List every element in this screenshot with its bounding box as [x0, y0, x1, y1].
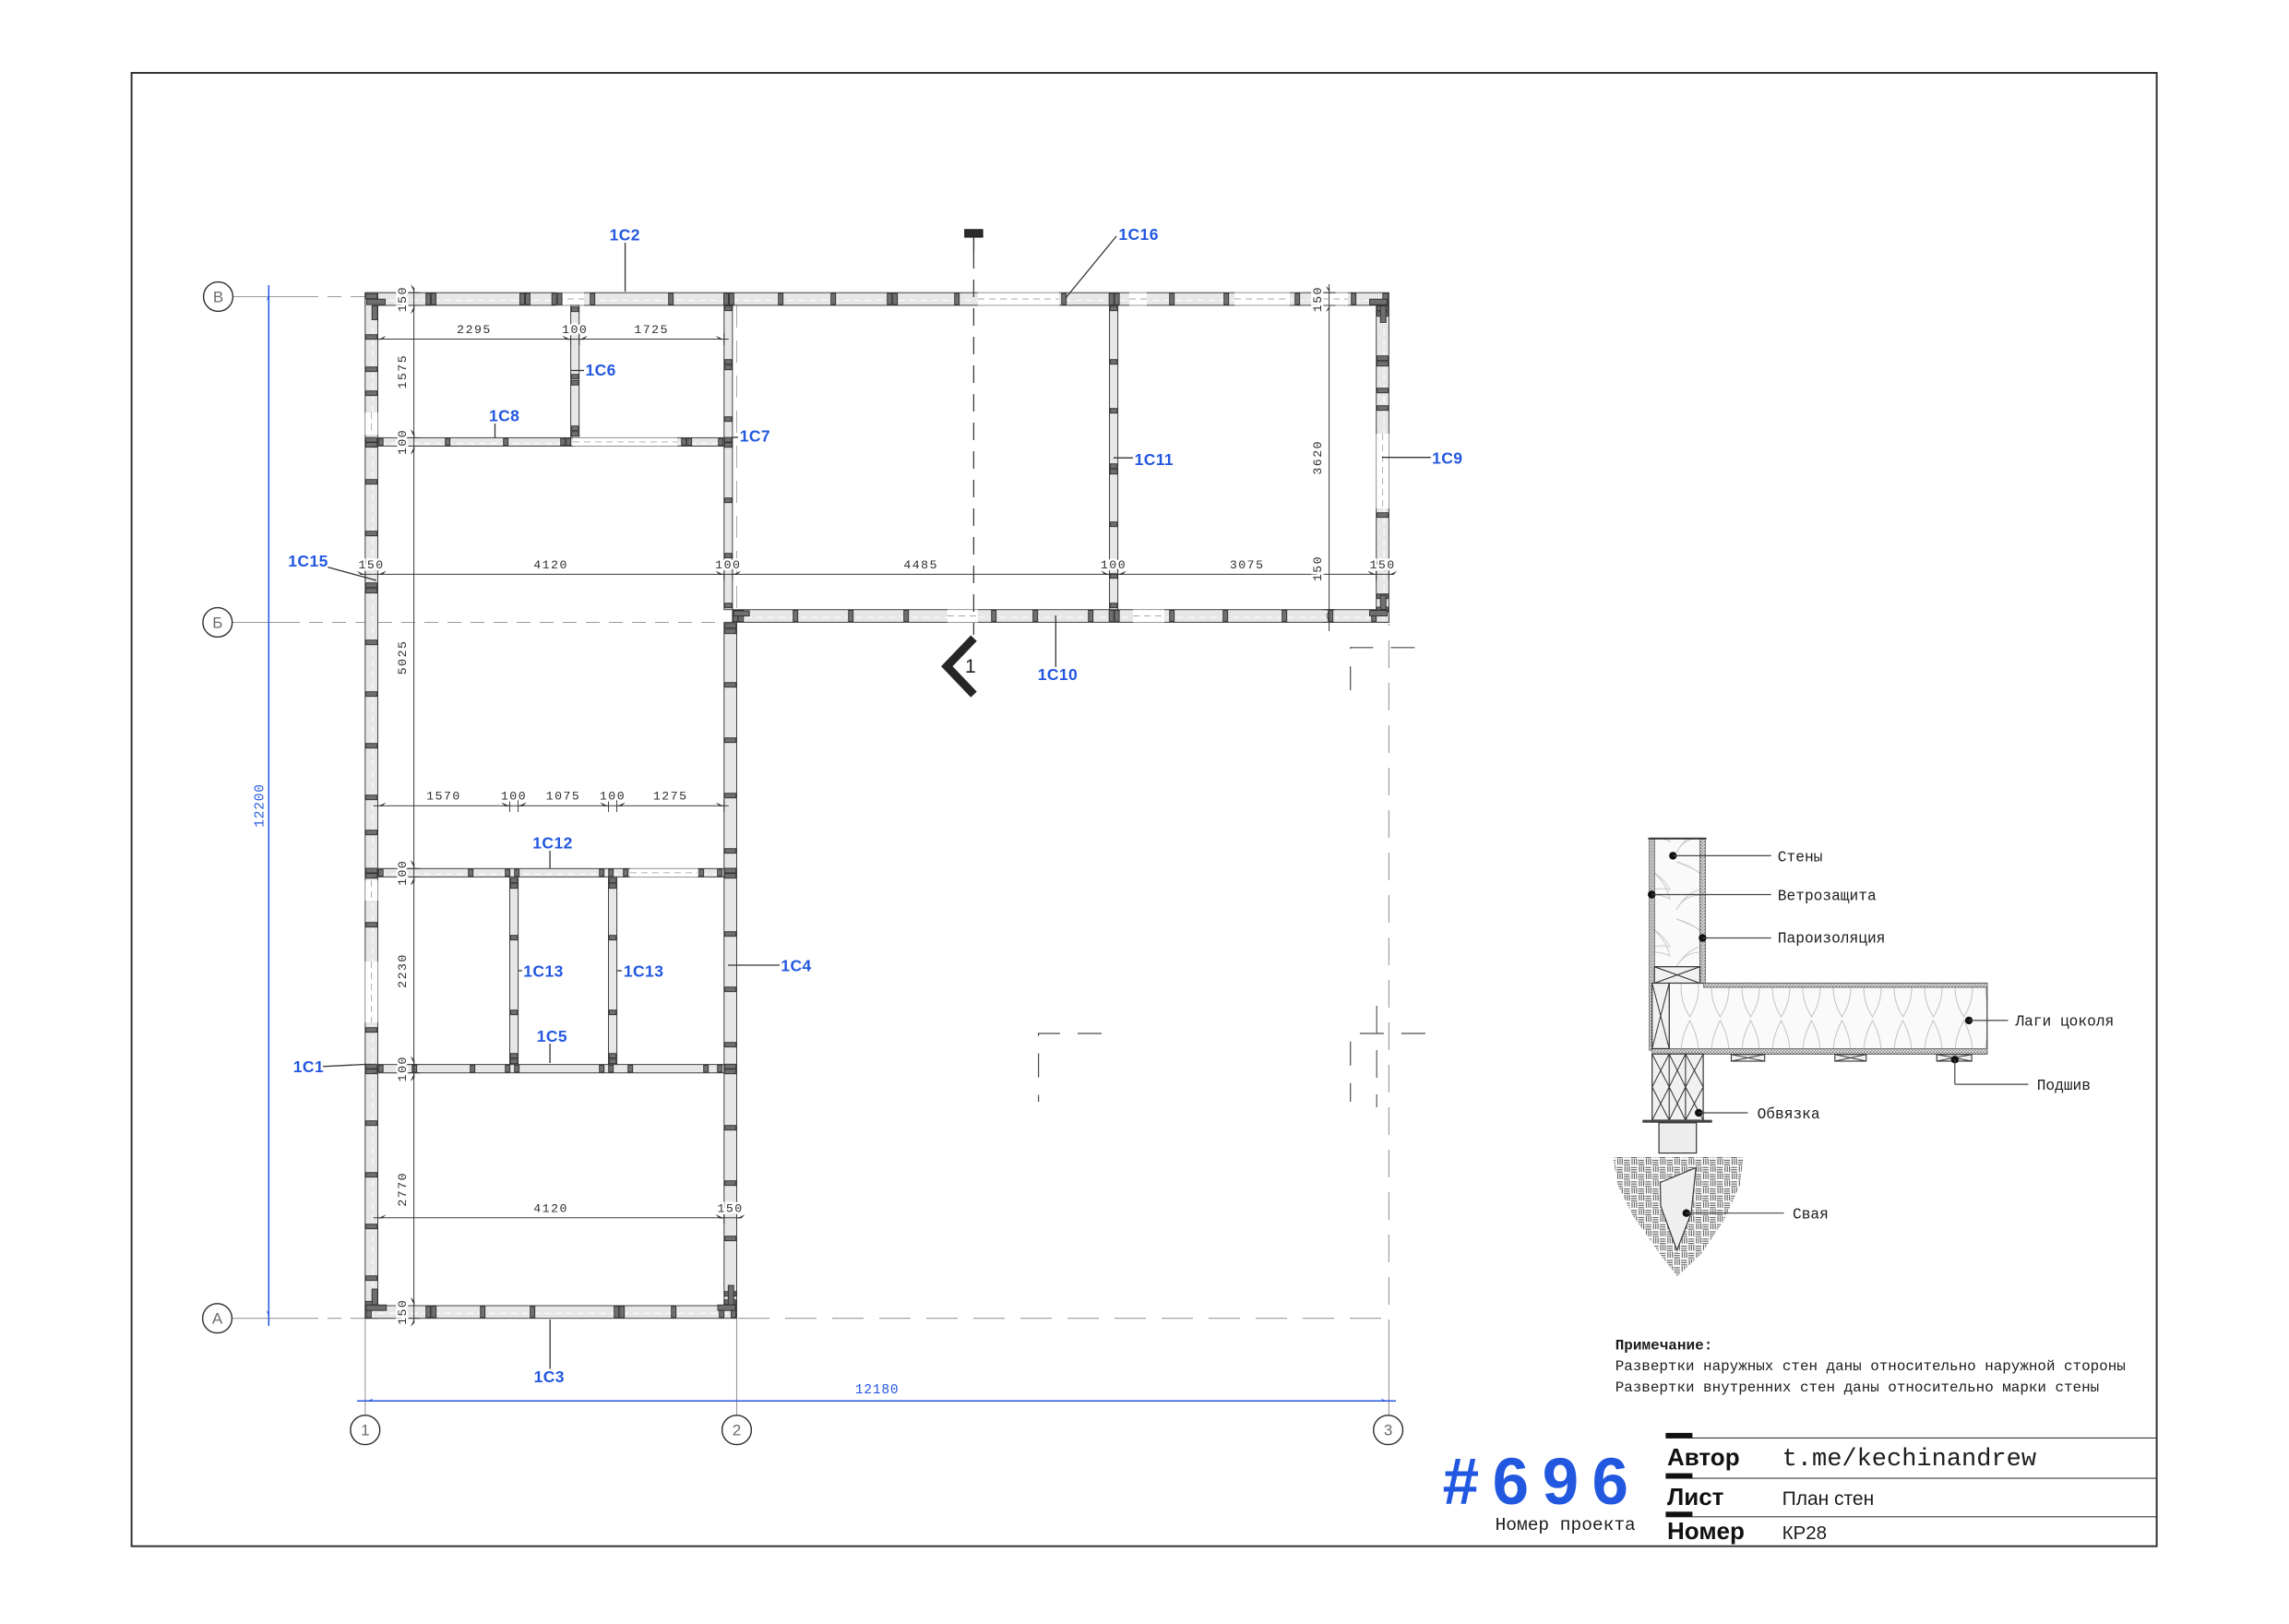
svg-text:Подшив: Подшив: [2037, 1078, 2091, 1094]
svg-text:#696: #696: [1443, 1446, 1642, 1519]
svg-text:1C13: 1C13: [624, 961, 663, 980]
svg-text:Лаги цоколя: Лаги цоколя: [2014, 1014, 2114, 1031]
svg-text:1725: 1725: [634, 323, 669, 337]
svg-text:1C3: 1C3: [534, 1367, 565, 1386]
svg-text:150: 150: [1311, 555, 1325, 581]
svg-text:1C15: 1C15: [288, 552, 328, 570]
svg-text:Развертки внутренних стен даны: Развертки внутренних стен даны относител…: [1615, 1379, 2099, 1396]
svg-text:В: В: [213, 289, 223, 306]
svg-text:3: 3: [1384, 1422, 1392, 1439]
svg-text:150: 150: [396, 1299, 410, 1325]
svg-text:100: 100: [501, 790, 527, 804]
svg-text:1: 1: [965, 656, 976, 677]
svg-text:100: 100: [396, 1056, 410, 1081]
svg-text:1C4: 1C4: [781, 956, 811, 974]
svg-text:Ветрозащита: Ветрозащита: [1778, 888, 1877, 904]
svg-text:t.me/kechinandrew: t.me/kechinandrew: [1782, 1446, 2036, 1474]
svg-text:План стен: План стен: [1782, 1488, 1875, 1510]
svg-text:Б: Б: [212, 615, 222, 632]
svg-text:100: 100: [396, 860, 410, 886]
svg-text:100: 100: [1101, 558, 1127, 572]
svg-text:1C9: 1C9: [1432, 449, 1462, 468]
svg-text:3620: 3620: [1311, 440, 1325, 475]
svg-text:1570: 1570: [426, 790, 461, 804]
svg-text:100: 100: [600, 790, 626, 804]
svg-text:100: 100: [396, 429, 410, 455]
svg-text:1C6: 1C6: [586, 361, 616, 379]
svg-text:1C7: 1C7: [740, 427, 770, 446]
svg-text:Лист: Лист: [1667, 1483, 1724, 1511]
svg-text:2770: 2770: [396, 1172, 410, 1207]
svg-text:4120: 4120: [533, 558, 568, 572]
svg-text:100: 100: [562, 323, 588, 337]
svg-text:3075: 3075: [1230, 558, 1265, 572]
svg-text:2: 2: [733, 1422, 741, 1439]
svg-text:Номер проекта: Номер проекта: [1496, 1515, 1636, 1535]
svg-text:Развертки наружных стен даны о: Развертки наружных стен даны относительн…: [1615, 1358, 2126, 1375]
svg-text:1C16: 1C16: [1118, 225, 1158, 244]
svg-text:1075: 1075: [546, 790, 581, 804]
svg-text:1C12: 1C12: [532, 834, 572, 853]
svg-text:4485: 4485: [903, 558, 938, 572]
svg-text:Номер: Номер: [1667, 1517, 1745, 1545]
svg-text:150: 150: [396, 286, 410, 312]
svg-text:1C10: 1C10: [1038, 665, 1078, 684]
svg-text:Автор: Автор: [1667, 1443, 1740, 1471]
svg-text:Стены: Стены: [1778, 850, 1823, 866]
svg-text:4120: 4120: [533, 1201, 568, 1215]
svg-text:Свая: Свая: [1793, 1207, 1829, 1224]
svg-text:1575: 1575: [396, 354, 410, 389]
svg-text:1C5: 1C5: [537, 1027, 567, 1045]
svg-text:КР28: КР28: [1782, 1522, 1827, 1544]
svg-text:150: 150: [1311, 286, 1325, 312]
svg-text:5025: 5025: [396, 640, 410, 675]
svg-text:2230: 2230: [396, 953, 410, 988]
svg-text:Обвязка: Обвязка: [1758, 1106, 1820, 1123]
svg-text:Примечание:: Примечание:: [1615, 1337, 1713, 1354]
svg-text:1C1: 1C1: [293, 1057, 324, 1076]
svg-text:1C8: 1C8: [489, 406, 519, 424]
svg-text:12200: 12200: [254, 783, 268, 828]
svg-text:150: 150: [358, 558, 384, 572]
svg-text:1C13: 1C13: [523, 961, 563, 980]
svg-text:А: А: [212, 1310, 223, 1328]
svg-text:1C2: 1C2: [610, 226, 640, 245]
svg-text:1: 1: [361, 1422, 369, 1439]
svg-text:100: 100: [715, 558, 741, 572]
svg-text:Пароизоляция: Пароизоляция: [1778, 931, 1886, 948]
svg-text:2295: 2295: [457, 323, 492, 337]
svg-text:150: 150: [717, 1201, 743, 1215]
svg-text:150: 150: [1369, 558, 1395, 572]
svg-text:1275: 1275: [653, 790, 688, 804]
svg-text:1C11: 1C11: [1135, 450, 1174, 469]
svg-text:12180: 12180: [855, 1383, 900, 1398]
